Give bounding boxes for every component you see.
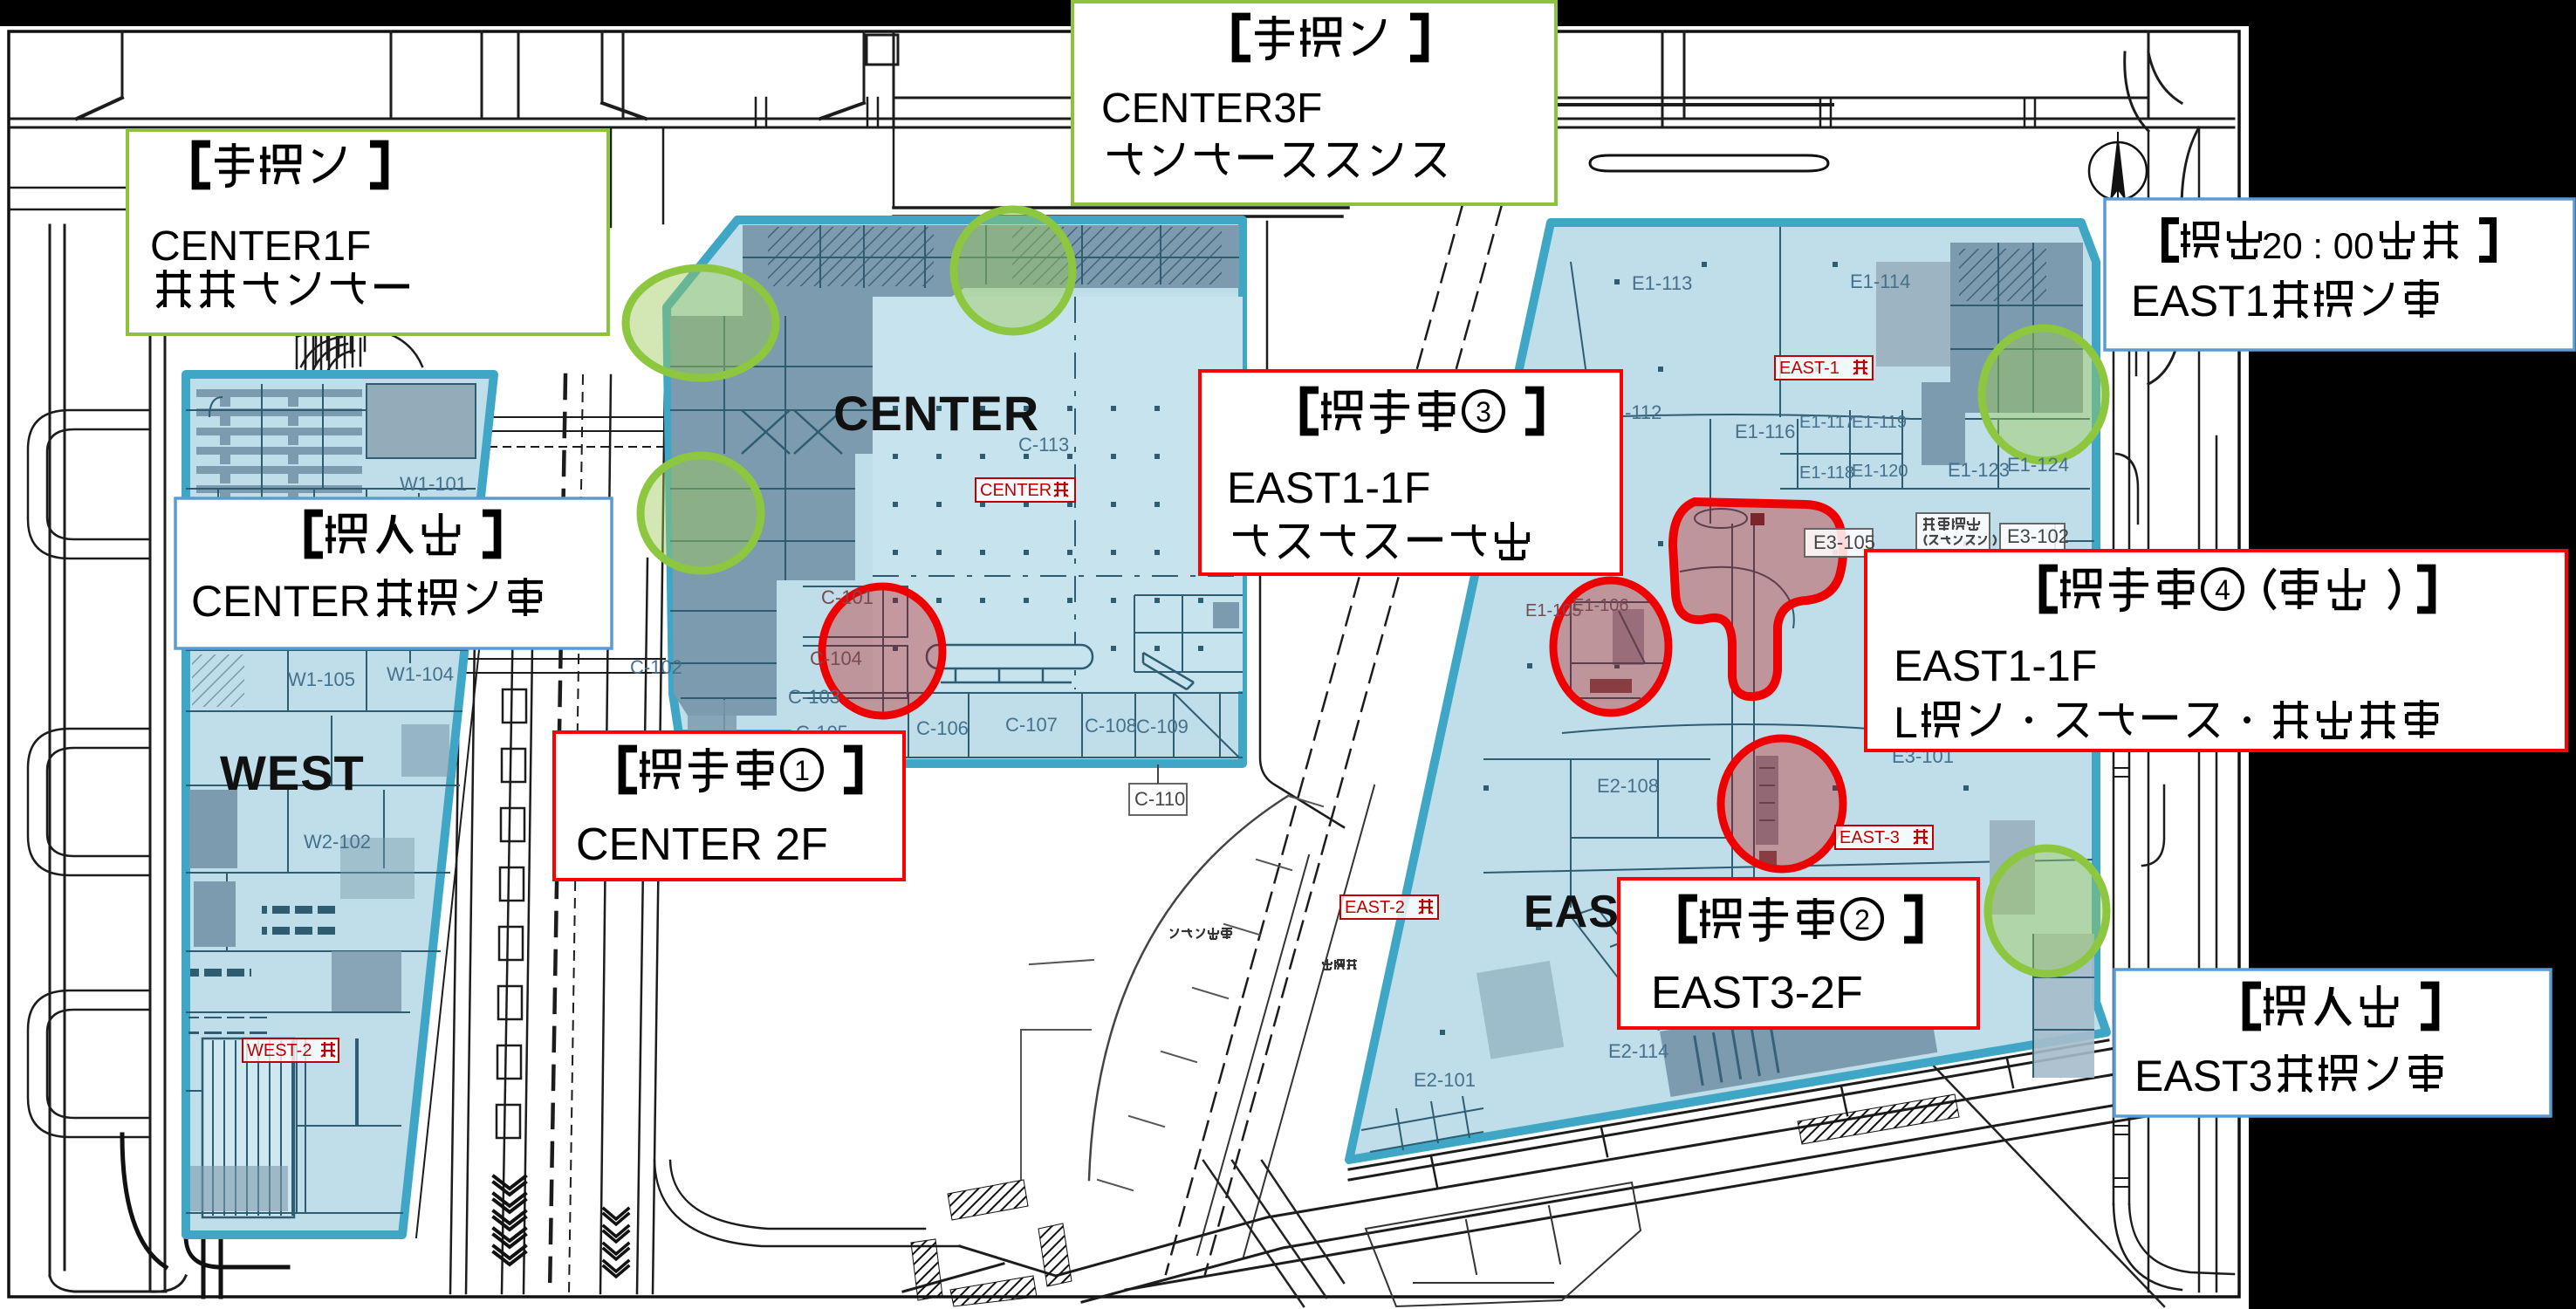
svg-text:C-106: C-106 bbox=[916, 717, 969, 739]
svg-text:WEST: WEST bbox=[220, 745, 365, 800]
svg-text:EAST3: EAST3 bbox=[2134, 1052, 2272, 1100]
svg-text:CENTER: CENTER bbox=[980, 481, 1052, 500]
svg-text:EAST1: EAST1 bbox=[2131, 277, 2269, 326]
svg-text:C-102: C-102 bbox=[630, 656, 682, 678]
svg-text:C-108: C-108 bbox=[1085, 715, 1137, 737]
svg-text:E1-113: E1-113 bbox=[1632, 272, 1692, 294]
svg-text:E2-108: E2-108 bbox=[1597, 775, 1659, 797]
svg-text:E1-123: E1-123 bbox=[1948, 459, 2010, 481]
svg-text:C-109: C-109 bbox=[1136, 716, 1189, 737]
svg-text:W1-101: W1-101 bbox=[400, 473, 467, 495]
svg-text:E1-118: E1-118 bbox=[1799, 463, 1854, 483]
svg-text:E1-120: E1-120 bbox=[1852, 462, 1908, 481]
svg-text:20 : 00: 20 : 00 bbox=[2262, 225, 2374, 266]
svg-text:E1-106: E1-106 bbox=[1572, 596, 1629, 615]
svg-text:E1-116: E1-116 bbox=[1735, 421, 1795, 442]
svg-text:3: 3 bbox=[1476, 396, 1491, 428]
svg-text:WEST-2: WEST-2 bbox=[247, 1041, 312, 1060]
svg-text:EAST-1: EAST-1 bbox=[1779, 359, 1840, 378]
svg-text:C-101: C-101 bbox=[821, 586, 874, 608]
svg-text:W1-105: W1-105 bbox=[288, 668, 355, 690]
svg-text:E1-124: E1-124 bbox=[2007, 454, 2069, 476]
svg-text:-112: -112 bbox=[1625, 401, 1661, 423]
svg-text:CENTER: CENTER bbox=[833, 386, 1039, 441]
svg-text:E2-114: E2-114 bbox=[1608, 1040, 1668, 1062]
svg-text:E1-117: E1-117 bbox=[1799, 413, 1854, 432]
svg-text:L: L bbox=[1894, 698, 1918, 747]
svg-text:EAST-3: EAST-3 bbox=[1840, 828, 1900, 847]
svg-text:EAST3-2F: EAST3-2F bbox=[1651, 968, 1863, 1018]
svg-text:E3-102: E3-102 bbox=[2007, 525, 2069, 547]
svg-text:E2-101: E2-101 bbox=[1414, 1069, 1476, 1091]
svg-text:CENTER 2F: CENTER 2F bbox=[576, 819, 828, 870]
svg-text:E1-114: E1-114 bbox=[1850, 271, 1910, 292]
svg-text:EAST1-1F: EAST1-1F bbox=[1227, 463, 1430, 512]
svg-text:CENTER: CENTER bbox=[191, 577, 371, 626]
svg-text:C-107: C-107 bbox=[1005, 714, 1058, 736]
svg-text:W2-102: W2-102 bbox=[304, 831, 371, 853]
svg-text:C-110: C-110 bbox=[1134, 788, 1185, 810]
svg-text:2: 2 bbox=[1854, 904, 1870, 935]
svg-text:1: 1 bbox=[794, 755, 810, 786]
svg-text:EAST1-1F: EAST1-1F bbox=[1894, 641, 2097, 690]
svg-text:E1-119: E1-119 bbox=[1852, 413, 1907, 432]
svg-text:W1-104: W1-104 bbox=[387, 663, 454, 685]
svg-text:CENTER3F: CENTER3F bbox=[1101, 86, 1322, 132]
svg-text:C-104: C-104 bbox=[810, 648, 862, 669]
svg-text:CENTER1F: CENTER1F bbox=[150, 223, 371, 270]
svg-text:C-103: C-103 bbox=[788, 686, 840, 708]
svg-text:4: 4 bbox=[2215, 574, 2230, 606]
svg-text:EAST-2: EAST-2 bbox=[1345, 898, 1405, 917]
